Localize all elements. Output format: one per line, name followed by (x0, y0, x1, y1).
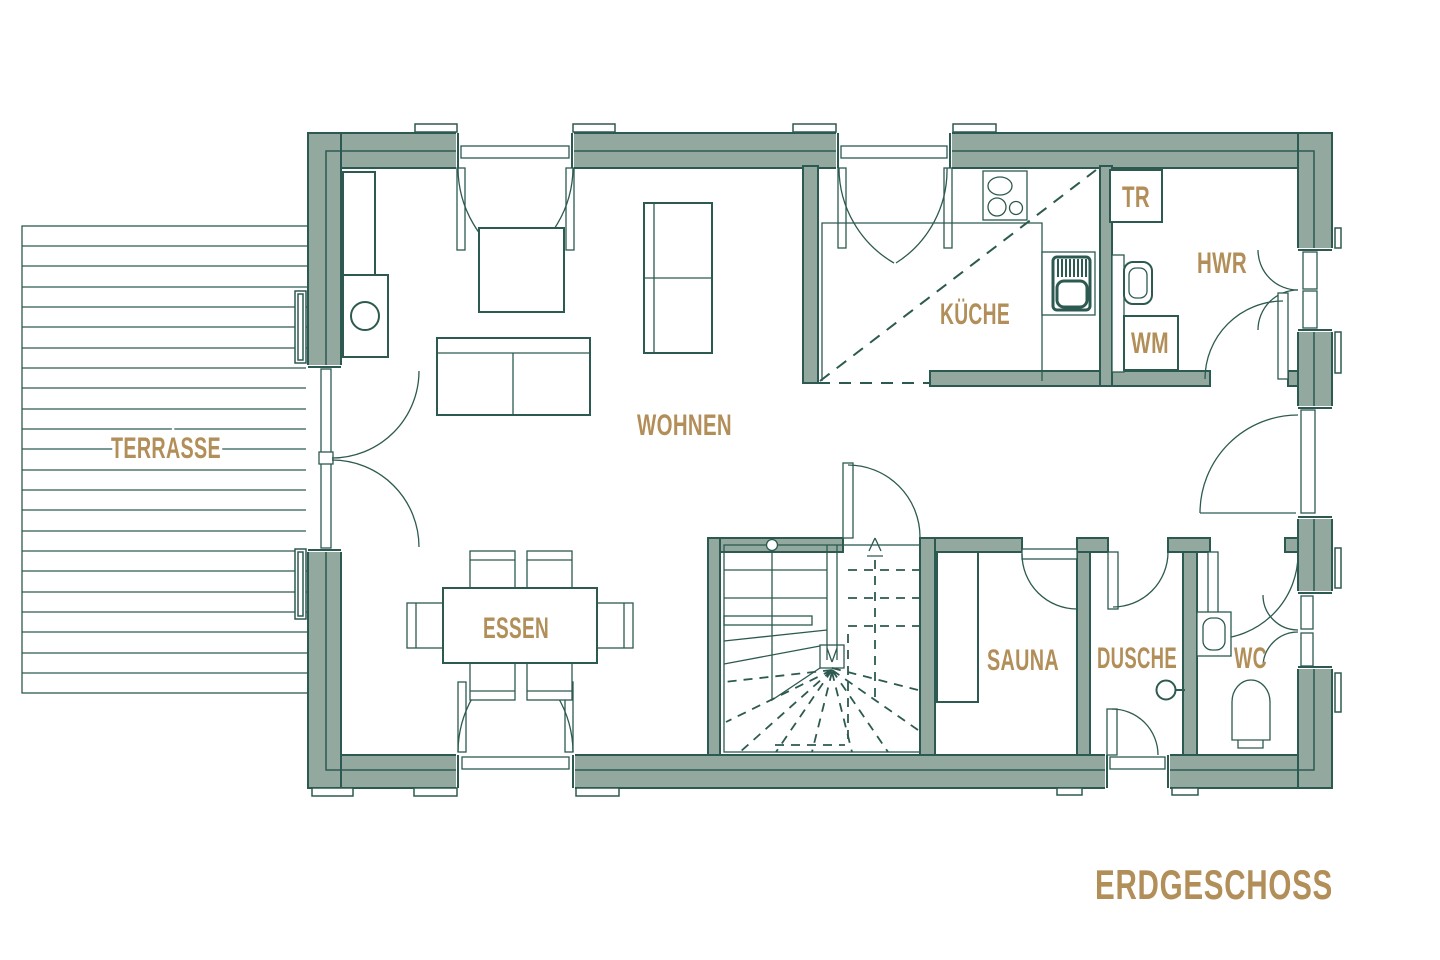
chimney (343, 172, 375, 275)
room-label-dusche: DUSCHE (1097, 642, 1177, 675)
sauna-bench-icon (937, 552, 978, 702)
shower-head-icon (1157, 681, 1186, 700)
fireplace-icon (343, 275, 388, 357)
room-label-sauna: SAUNA (987, 644, 1059, 677)
washbasin-icon (1197, 612, 1231, 656)
sofa-icon (437, 338, 590, 415)
stair-door (843, 463, 920, 538)
wall-dusche-wc (1183, 552, 1197, 755)
stair-handrail (724, 616, 812, 625)
wohnen-furniture (343, 172, 712, 415)
room-label-terrasse: TERRASSE (111, 432, 221, 465)
toilet-icon (1232, 680, 1270, 748)
newel-post (767, 540, 778, 551)
stairs-icon (724, 538, 920, 752)
stairwell-outline (724, 545, 920, 752)
room-label-essen: ESSEN (483, 612, 549, 645)
wall-stairs-right (920, 538, 935, 755)
sideboard-icon (644, 203, 712, 353)
wall-hwr-bottom-a (1112, 371, 1210, 386)
sauna-door (1022, 549, 1077, 609)
dusche-door (1108, 552, 1168, 609)
wall-kitchen-left (803, 166, 818, 383)
dusche-exterior-door (1107, 709, 1165, 769)
floor-plan: TERRASSE WOHNEN ESSEN KÜCHE TR HWR WM SA… (0, 0, 1440, 960)
hwr-counter (1112, 255, 1124, 372)
room-label-hwr: HWR (1197, 247, 1247, 280)
stove-icon (983, 171, 1027, 220)
floor-title: ERDGESCHOSS (1095, 861, 1333, 908)
wall-wc-stub (1285, 538, 1298, 552)
stair-upper-treads-dashed (848, 570, 920, 626)
stair-winder-edges (724, 630, 827, 664)
wall-sauna-top-a (935, 538, 1022, 552)
coffee-table-icon (479, 228, 564, 312)
wall-sauna-top-b (1077, 538, 1108, 552)
up-arrow-icon (867, 538, 883, 700)
room-label-tr: TR (1122, 181, 1150, 214)
stair-pole (820, 645, 844, 668)
wall-hall-b (1168, 538, 1210, 552)
wall-kitchen-bottom (930, 371, 1112, 386)
room-label-wm: WM (1131, 327, 1169, 360)
kitchen-fixtures (818, 170, 1096, 383)
room-label-kueche: KÜCHE (940, 298, 1010, 331)
room-label-wohnen: WOHNEN (637, 409, 732, 442)
wall-stairs-left (708, 538, 720, 755)
room-label-wc: WC (1234, 642, 1267, 675)
hwr-door (1205, 293, 1288, 379)
wall-hwr-bottom-b (1288, 371, 1298, 386)
stair-treads (724, 570, 827, 598)
stair-winder-dashed (724, 668, 918, 752)
kitchen-sink-icon (1042, 252, 1095, 315)
wall-sauna-right (1077, 552, 1090, 755)
utility-sink-icon (1124, 262, 1152, 304)
terrace-side-shutter-marks (295, 291, 306, 619)
